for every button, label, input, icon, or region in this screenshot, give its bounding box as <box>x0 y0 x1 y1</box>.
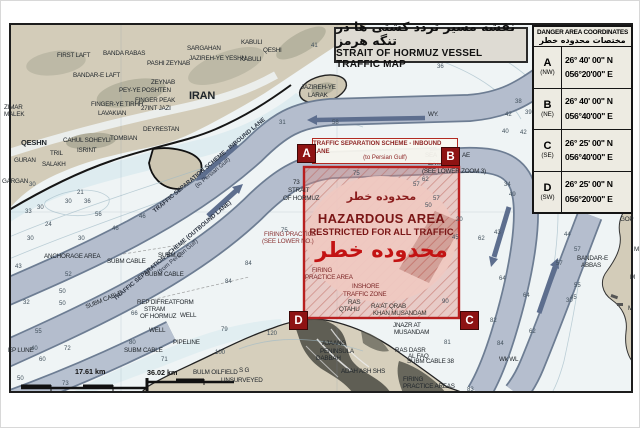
depth-sounding: 43 <box>15 264 22 270</box>
map-label: PASHI ZEYNAB <box>147 61 190 67</box>
map-label: TRIL <box>50 151 63 157</box>
map-label: QESHN <box>21 139 47 147</box>
depth-sounding: 55 <box>574 283 581 289</box>
depth-sounding: 50 <box>425 203 432 209</box>
map-label: AJAANG <box>322 341 346 347</box>
map-label: PEY-YE POSHTEN <box>119 88 171 94</box>
coord-longitude: 056°40'00" E <box>565 109 631 124</box>
coordinates-table-header-en: DANGER AREA COORDINATES <box>534 29 631 36</box>
depth-sounding: 80 <box>129 340 136 346</box>
depth-sounding: 75 <box>353 171 360 177</box>
map-label: PRACTICE AREAS <box>403 384 455 390</box>
depth-sounding: 46 <box>139 214 146 220</box>
depth-sounding: 75 <box>281 228 288 234</box>
depth-sounding: 62 <box>422 177 429 183</box>
depth-sounding: 50 <box>17 376 24 382</box>
map-label: BANDAR-E LAFT <box>73 73 120 79</box>
map-label: LARAK <box>308 93 328 99</box>
coord-latitude: 26° 25' 00" N <box>565 136 631 151</box>
depth-sounding: 43 <box>494 230 501 236</box>
map-label: QESHI <box>263 48 282 54</box>
coord-values-cell: 26° 40' 00" N056°20'00" E <box>562 47 631 88</box>
coord-point-letter: A <box>544 58 552 69</box>
map-label: Wk WL <box>499 357 518 363</box>
coord-values-cell: 26° 25' 00" N056°40'00" E <box>562 130 631 171</box>
map-label: SALAKH <box>42 162 66 168</box>
depth-sounding: 66 <box>131 311 138 317</box>
vessel-traffic-map: FIRST LAFTBANDA RABASPASHI ZEYNABBANDAR-… <box>0 0 640 428</box>
map-label: ISRINT <box>77 148 96 154</box>
hazard-title-fa: محدوده خطر <box>304 191 459 202</box>
depth-sounding: 55 <box>35 329 42 335</box>
map-label: FINGER PEAK <box>135 98 175 104</box>
map-label: QTAHU <box>339 307 360 313</box>
map-label: SUBM CABLE 38 <box>407 359 454 365</box>
depth-sounding: 84 <box>497 341 504 347</box>
depth-sounding: 30 <box>29 182 36 188</box>
map-label: JAZIREH-YE YESHN <box>189 56 246 62</box>
depth-sounding: 64 <box>499 276 506 282</box>
map-label: (SEE LOWER ZOOM 3) <box>422 169 486 175</box>
depth-sounding: 50 <box>59 289 66 295</box>
coord-point-corner: (NE) <box>541 111 554 118</box>
map-label: GOP <box>620 217 633 223</box>
scale-distance-1: 17.61 km <box>75 367 105 376</box>
map-label: MALEK <box>4 112 24 118</box>
depth-sounding: 60 <box>39 357 46 363</box>
coord-point-letter: B <box>544 100 552 111</box>
coord-row: A(NW)26° 40' 00" N056°20'00" E <box>534 47 631 89</box>
coordinates-table-header: DANGER AREA COORDINATES مختصات محدوده خط… <box>534 27 631 47</box>
coordinates-table-header-ar: مختصات محدوده خطر <box>534 36 631 45</box>
coord-point-letter: C <box>544 141 552 152</box>
depth-sounding: 41 <box>311 43 318 49</box>
tss-inbound-label-box: TRAFFIC SEPARATION SCHEME - INBOUND LANE… <box>312 138 458 164</box>
depth-sounding: 84 <box>245 261 252 267</box>
map-label: PIPELINE <box>173 340 200 346</box>
depth-sounding: 71 <box>161 357 168 363</box>
depth-sounding: 36 <box>84 199 91 205</box>
depth-sounding: 24 <box>45 222 52 228</box>
map-label: S G <box>239 368 249 374</box>
depth-sounding: 83 <box>467 387 474 393</box>
map-label: ABBAS <box>581 263 601 269</box>
map-label: SUBM CABLE <box>107 259 146 265</box>
coord-longitude: 056°20'00" E <box>565 192 631 207</box>
harbor-mark <box>617 303 623 306</box>
depth-sounding: 120 <box>267 331 277 337</box>
depth-sounding: 62 <box>478 236 485 242</box>
depth-sounding: 42 <box>520 130 527 136</box>
map-label: 27INT JAZI <box>141 106 171 112</box>
corner-marker-d: D <box>289 311 308 330</box>
depth-sounding: 84 <box>225 279 232 285</box>
coord-point-cell: C(SE) <box>534 130 562 171</box>
map-label: KABULI <box>240 57 261 63</box>
depth-sounding: 38 <box>515 99 522 105</box>
depth-sounding: 39 <box>525 110 532 116</box>
coord-longitude: 056°20'00" E <box>565 67 631 82</box>
depth-sounding: 40 <box>31 346 38 352</box>
coord-row: C(SE)26° 25' 00" N056°40'00" E <box>534 130 631 172</box>
map-label: TOMBIAN <box>110 136 137 142</box>
coord-point-cell: B(NE) <box>534 89 562 130</box>
map-label: FIRST LAFT <box>57 53 90 59</box>
map-label: UNSURVEYED <box>221 378 263 384</box>
hazard-title-en: HAZARDOUS AREA <box>304 212 459 225</box>
depth-sounding: 50 <box>59 301 66 307</box>
coord-point-cell: A(NW) <box>534 47 562 88</box>
map-label: M <box>630 275 635 281</box>
map-label: WY. <box>428 112 438 118</box>
tss-label-line2: (to Persian Gulf) <box>363 155 407 162</box>
depth-sounding: 44 <box>564 232 571 238</box>
depth-sounding: 72 <box>64 346 71 352</box>
map-label: DABBAH <box>316 356 341 362</box>
depth-sounding: 34 <box>504 182 511 188</box>
map-label: IRAN <box>189 91 215 102</box>
coord-point-corner: (NW) <box>540 69 554 76</box>
scale-distance-2: 36.02 km <box>147 368 177 377</box>
depth-sounding: 58 <box>332 120 339 126</box>
coord-point-cell: D(SW) <box>534 172 562 213</box>
danger-area-coordinates-table: DANGER AREA COORDINATES مختصات محدوده خط… <box>532 25 633 214</box>
map-label: M <box>628 306 633 312</box>
depth-sounding: 100 <box>215 350 225 356</box>
depth-sounding: 90 <box>442 299 449 305</box>
map-label: M <box>634 247 639 253</box>
coord-latitude: 26° 25' 00" N <box>565 177 631 192</box>
depth-sounding: 82 <box>490 318 497 324</box>
map-label: 73 <box>293 180 300 186</box>
coord-latitude: 26° 40' 00" N <box>565 53 631 68</box>
depth-sounding: 56 <box>95 212 102 218</box>
depth-sounding: 46 <box>112 226 119 232</box>
map-label: ADAH ASH SHS <box>341 369 385 375</box>
coord-row: D(SW)26° 25' 00" N056°20'00" E <box>534 172 631 213</box>
map-label: GARGAN <box>2 179 28 185</box>
map-label: ZEYNAB <box>151 80 175 86</box>
map-label: TRAFFIC ZONE <box>343 292 386 298</box>
map-title-en: STRAIT OF HORMUZ VESSEL TRAFFIC MAP <box>336 48 526 70</box>
map-label: ANCHORAGE AREA <box>44 254 100 260</box>
map-label: JAZIREH-YE <box>301 85 336 91</box>
map-label: KABULI <box>241 40 262 46</box>
map-label: SUBM CABLE <box>124 348 163 354</box>
depth-sounding: 31 <box>279 120 286 126</box>
map-label: BULM OILFIELD <box>193 370 238 376</box>
depth-sounding: 30 <box>78 236 85 242</box>
depth-sounding: 73 <box>62 381 69 387</box>
map-label: GURAN <box>14 158 36 164</box>
map-label: MUSANDAM <box>394 330 429 336</box>
map-label: WELL <box>180 313 196 319</box>
map-label: KHAN MUSANDAM <box>373 311 426 317</box>
hazard-subtitle-en: RESTRICTED FOR ALL TRAFFIC <box>304 228 459 237</box>
map-label: INSHORE <box>352 284 379 290</box>
depth-sounding: 49 <box>509 192 516 198</box>
depth-sounding: 30 <box>566 298 573 304</box>
coord-latitude: 26° 40' 00" N <box>565 94 631 109</box>
map-title-box: نقشه مسیر تردد کشتی ها در تنگه هرمز STRA… <box>334 27 528 63</box>
depth-sounding: 57 <box>574 247 581 253</box>
depth-sounding: 30 <box>37 205 44 211</box>
coordinates-table-rows: A(NW)26° 40' 00" N056°20'00" EB(NE)26° 4… <box>534 47 631 212</box>
map-label: EP LUNE <box>8 348 33 354</box>
coord-row: B(NE)26° 40' 00" N056°40'00" E <box>534 89 631 131</box>
depth-sounding: 40 <box>502 129 509 135</box>
coord-values-cell: 26° 40' 00" N056°40'00" E <box>562 89 631 130</box>
coord-longitude: 056°40'00" E <box>565 150 631 165</box>
depth-sounding: 33 <box>25 209 32 215</box>
depth-sounding: 79 <box>221 327 228 333</box>
map-label: PRACTICE AREA <box>305 275 353 281</box>
coord-point-corner: (SE) <box>541 152 553 159</box>
map-label: WELL <box>149 328 165 334</box>
corner-marker-b: B <box>441 147 460 166</box>
depth-sounding: 81 <box>444 340 451 346</box>
map-label: SARGAHAN <box>187 46 221 52</box>
map-label: OF HORMUZ <box>140 314 176 320</box>
map-label: AE <box>462 153 470 159</box>
depth-sounding: 21 <box>77 190 84 196</box>
depth-sounding: 52 <box>65 272 72 278</box>
depth-sounding: 30 <box>27 236 34 242</box>
depth-sounding: 32 <box>23 300 30 306</box>
coord-point-corner: (SW) <box>540 194 554 201</box>
depth-sounding: 62 <box>529 329 536 335</box>
hazard-title-fa-large: محدوده خطر <box>304 240 459 261</box>
map-label: DEYRESTAN <box>143 127 179 133</box>
map-label: LAVAKIAN <box>98 111 126 117</box>
depth-sounding: 57 <box>413 182 420 188</box>
tss-label-line1: TRAFFIC SEPARATION SCHEME - INBOUND LANE <box>313 140 457 155</box>
depth-sounding: 30 <box>65 199 72 205</box>
coord-point-letter: D <box>544 183 552 194</box>
corner-marker-a: A <box>297 144 316 163</box>
map-title-fa: نقشه مسیر تردد کشتی ها در تنگه هرمز <box>336 20 526 49</box>
depth-sounding: 42 <box>505 112 512 118</box>
coord-values-cell: 26° 25' 00" N056°20'00" E <box>562 172 631 213</box>
depth-sounding: 57 <box>556 261 563 267</box>
corner-marker-c: C <box>460 311 479 330</box>
depth-sounding: 64 <box>523 293 530 299</box>
map-label: BANDA RABAS <box>103 51 145 57</box>
map-label: CAHUL SOHEYLI <box>63 138 111 144</box>
